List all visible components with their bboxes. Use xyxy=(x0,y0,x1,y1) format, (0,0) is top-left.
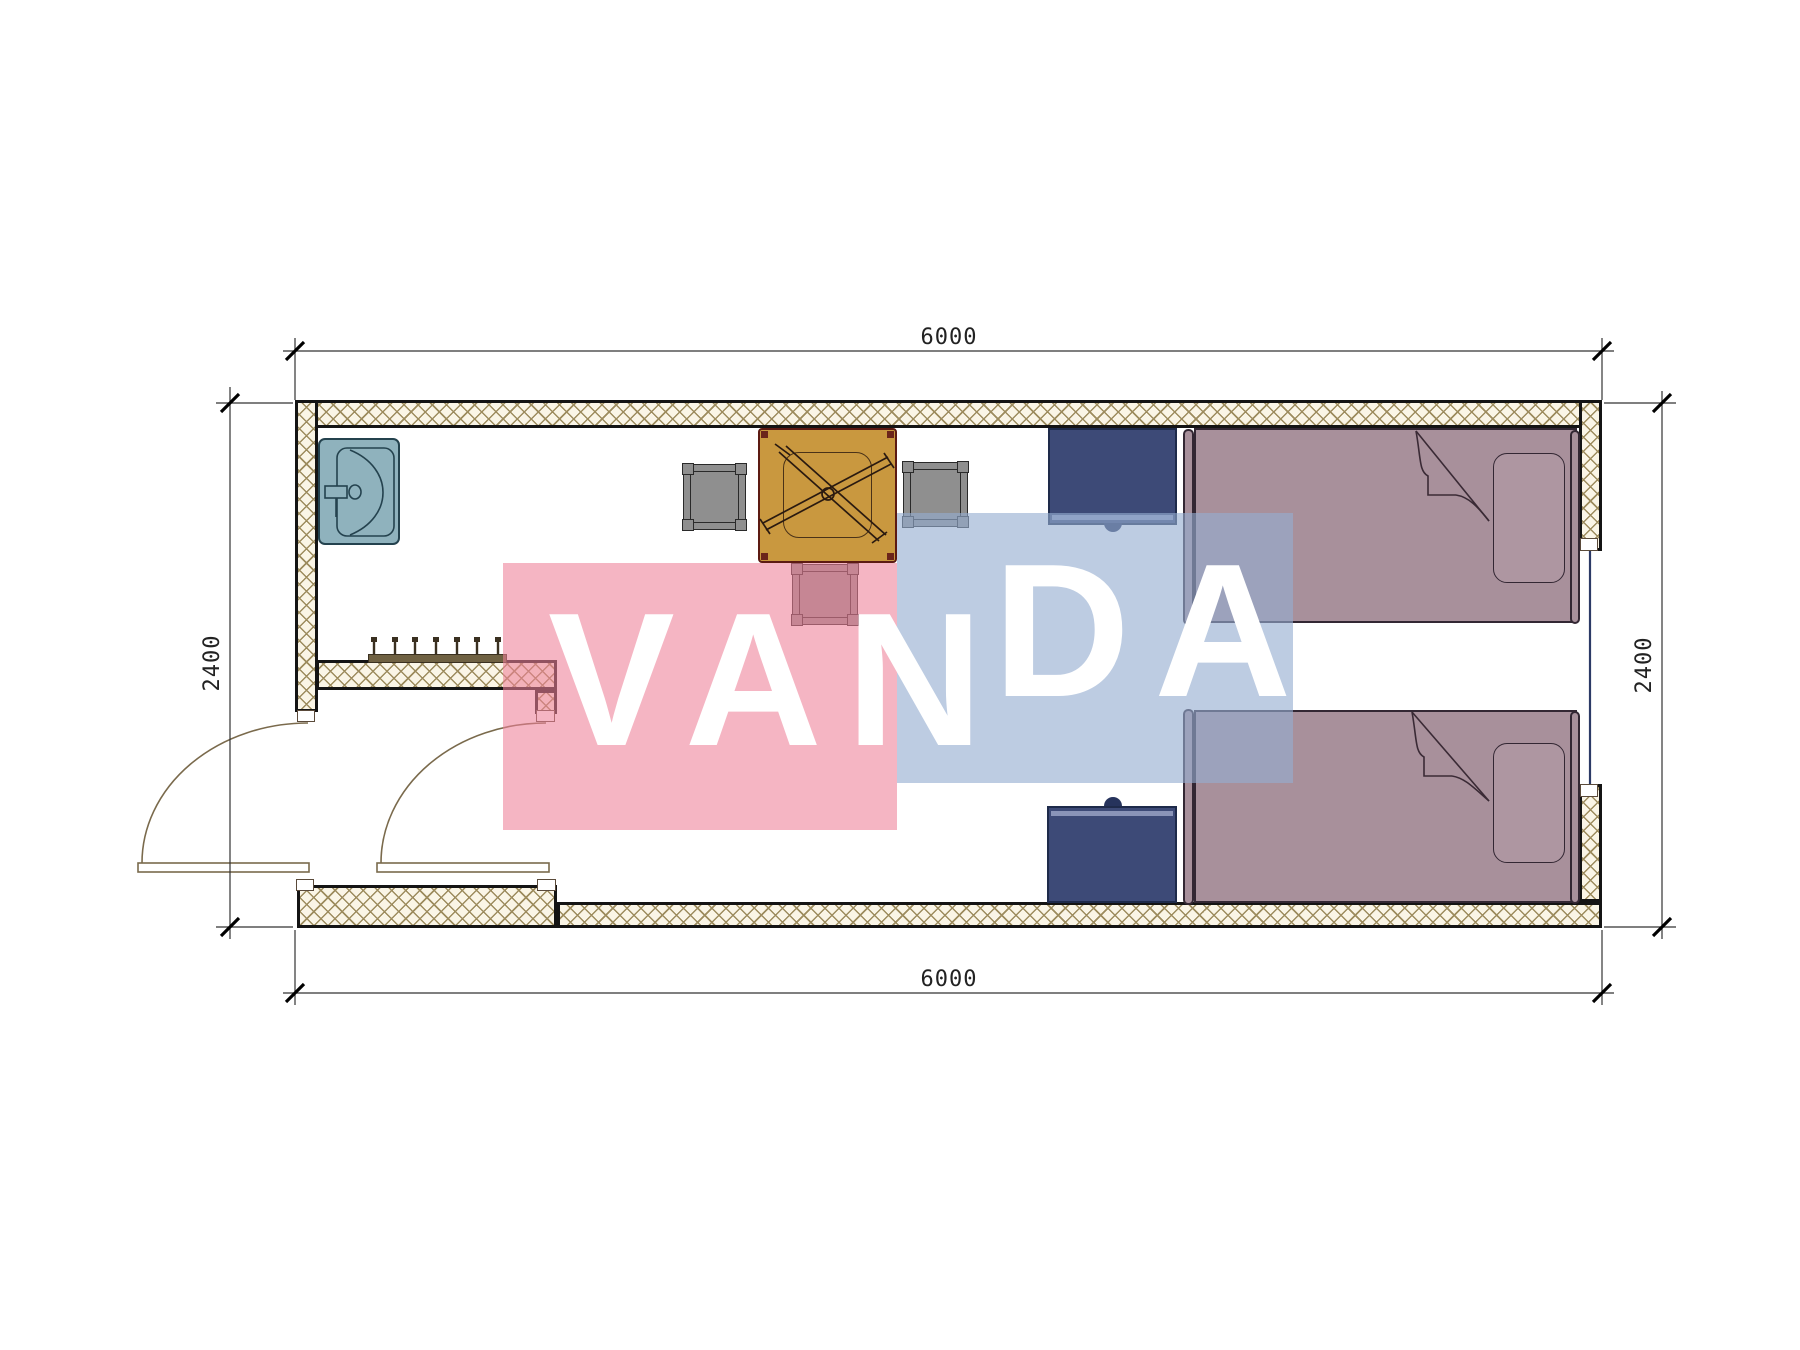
sink-basin-detail xyxy=(325,448,394,536)
table-cross-legs xyxy=(760,444,894,543)
dim-label-right: 2400 xyxy=(1632,605,1658,725)
watermark-text-da: DA xyxy=(993,536,1315,726)
entry-door-left xyxy=(138,723,309,872)
coat-rack-hooks xyxy=(371,637,501,655)
blanket-fold xyxy=(1416,431,1489,521)
floor-plan-canvas: 6000 6000 2400 2400 VAN DA xyxy=(0,0,1800,1350)
dim-label-top: 6000 xyxy=(889,325,1009,351)
blanket-fold xyxy=(1412,712,1489,801)
dim-label-bottom: 6000 xyxy=(889,967,1009,993)
dimension-left xyxy=(216,387,293,939)
dim-label-left: 2400 xyxy=(200,603,226,723)
watermark-text-van: VAN xyxy=(548,585,1007,775)
